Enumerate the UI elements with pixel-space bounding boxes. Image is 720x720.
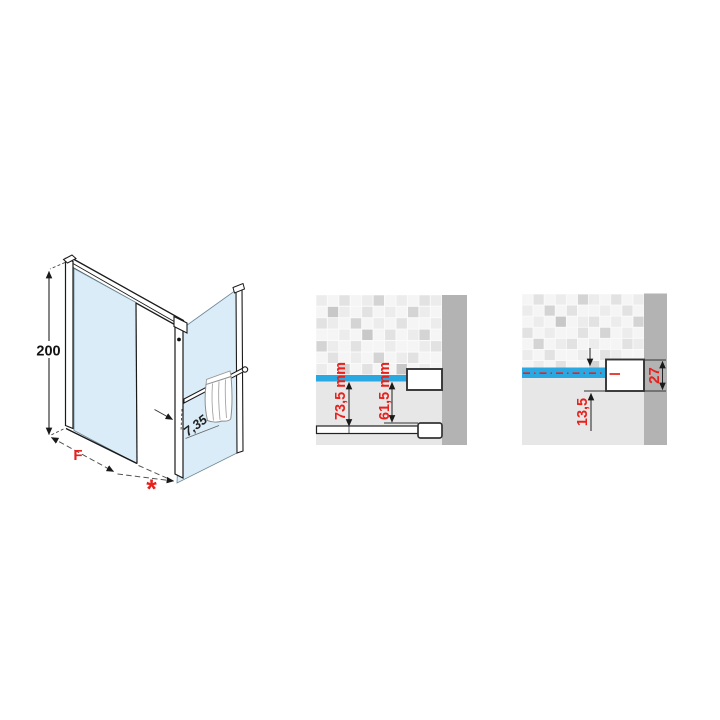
towel	[205, 371, 232, 422]
side-panel-front-post	[175, 323, 183, 479]
height-dimension: 200	[36, 263, 65, 436]
entry-dimension: *	[118, 466, 174, 503]
wall-profile	[66, 259, 74, 429]
depth-dimension-label: 13,5	[575, 398, 591, 426]
height-dimension-label: 200	[36, 344, 60, 360]
post-fixing-dot	[177, 338, 181, 342]
fixed-panel-glass	[74, 269, 137, 464]
inner-dimension-label: 61,5 mm	[377, 362, 393, 420]
glass-wall-profile	[418, 423, 442, 438]
wall-bracket	[606, 360, 644, 392]
wall-bracket-section-detail: 13,5 27	[521, 293, 668, 446]
outer-dimension-label: 73,5 mm	[333, 362, 349, 420]
entry-dimension-label: *	[146, 474, 157, 502]
wall-bracket	[407, 369, 442, 390]
width-dimension-label: F	[73, 447, 82, 464]
depth-dimension: 13,5	[575, 394, 591, 432]
glass-top-edge-section	[317, 426, 420, 434]
inner-dimension: 61,5 mm	[377, 362, 393, 422]
side-panel-profile-cap	[233, 284, 245, 294]
towel-bar-end-knob	[242, 367, 247, 372]
support-bar-blue	[316, 375, 407, 382]
bracket-height-dimension-label: 27	[646, 367, 663, 384]
isometric-shower-diagram: 200 F * 7,35	[30, 240, 280, 502]
top-bar-section-detail: 73,5 mm 61,5 mm	[315, 293, 468, 446]
side-wall	[442, 295, 467, 445]
technical-drawing-page: 200 F * 7,35	[0, 0, 720, 720]
